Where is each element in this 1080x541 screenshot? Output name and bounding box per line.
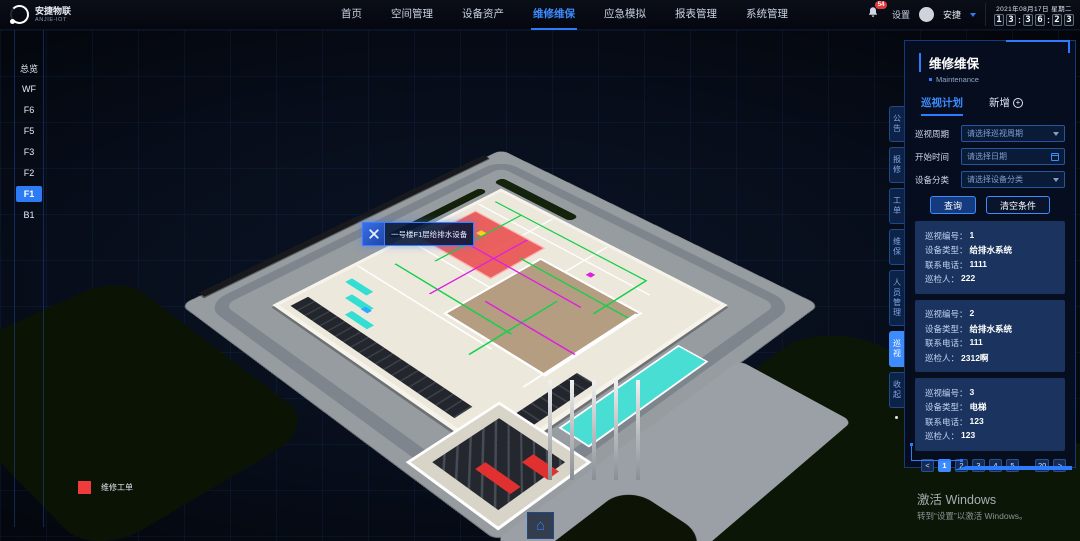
start-time-label: 开始时间 <box>915 151 961 163</box>
inspection-cycle-placeholder: 请选择巡视周期 <box>967 128 1053 139</box>
card-field-label: 巡检人： <box>925 273 959 285</box>
side-tab-collapse[interactable]: 收起 <box>889 372 904 408</box>
clear-filters-button[interactable]: 清空条件 <box>986 196 1050 214</box>
logo-icon <box>10 5 29 24</box>
side-tab-repair[interactable]: 报修 <box>889 147 904 183</box>
time-digit: 2 <box>1052 14 1062 26</box>
side-tab-inspection[interactable]: 巡视 <box>889 331 904 367</box>
filter-form: 巡视周期 请选择巡视周期 开始时间 请选择日期 设备分类 请选择设备分类 查询 … <box>915 125 1065 214</box>
floor-item-f2[interactable]: F2 <box>16 165 42 181</box>
panel-tabs: 巡视计划 新增 <box>921 95 1075 116</box>
time-digit: 3 <box>1023 14 1033 26</box>
side-strip-dot <box>895 416 898 419</box>
time-digits: 1 3 : 3 6 : 2 3 <box>994 14 1074 26</box>
time-digit: 6 <box>1035 14 1045 26</box>
time-digit: 3 <box>1064 14 1074 26</box>
home-icon <box>536 518 545 533</box>
tab-add-new-label: 新增 <box>989 95 1010 110</box>
chevron-down-icon <box>1053 132 1059 136</box>
inspection-card[interactable]: 巡视编号：1 设备类型：给排水系统 联系电话：1111 巡检人：222 <box>915 221 1065 294</box>
side-tab-maintenance[interactable]: 维保 <box>889 229 904 265</box>
page-next-button[interactable]: > <box>1053 459 1066 472</box>
card-field-label: 巡检人： <box>925 430 959 442</box>
card-field-label: 巡视编号： <box>925 308 968 320</box>
ground-plane <box>182 150 818 541</box>
watermark-line1: 激活 Windows <box>917 489 1028 508</box>
nav-item-system[interactable]: 系统管理 <box>744 0 790 30</box>
nav-item-space[interactable]: 空间管理 <box>389 0 435 30</box>
legend-color-swatch <box>78 481 91 494</box>
floor-item-f5[interactable]: F5 <box>16 123 42 139</box>
query-button[interactable]: 查询 <box>930 196 976 214</box>
start-date-placeholder: 请选择日期 <box>967 151 1051 162</box>
calendar-icon <box>1051 153 1059 161</box>
side-tab-personnel[interactable]: 人员管理 <box>889 270 904 326</box>
maintenance-panel: 维修维保 Maintenance 巡视计划 新增 巡视周期 请选择巡视周期 开始… <box>904 40 1076 468</box>
time-separator: : <box>1047 15 1050 25</box>
card-field-value: 111 <box>970 337 983 349</box>
nav-item-reports[interactable]: 报表管理 <box>673 0 719 30</box>
card-field-label: 联系电话： <box>925 259 968 271</box>
card-field-value: 123 <box>970 416 984 428</box>
tab-inspection-plan[interactable]: 巡视计划 <box>921 95 963 116</box>
plus-circle-icon <box>1013 98 1023 108</box>
date-text: 2021年08月17日 星期二 <box>994 3 1074 13</box>
side-tab-announcements[interactable]: 公告 <box>889 106 904 142</box>
device-category-label: 设备分类 <box>915 174 961 186</box>
model-device-tag[interactable]: 一号楼F1层给排水设备 <box>362 222 474 246</box>
tab-add-new[interactable]: 新增 <box>989 95 1023 116</box>
card-field-value: 1 <box>970 230 975 242</box>
time-digit: 1 <box>994 14 1004 26</box>
side-tab-strip: 公告 报修 工单 维保 人员管理 巡视 收起 <box>889 106 904 419</box>
inspection-card[interactable]: 巡视编号：3 设备类型：电梯 联系电话：123 巡检人：123 <box>915 378 1065 451</box>
floor-item-b1[interactable]: B1 <box>16 207 42 223</box>
user-name[interactable]: 安捷 <box>943 8 961 21</box>
inspection-card[interactable]: 巡视编号：2 设备类型：给排水系统 联系电话：111 巡检人：2312啊 <box>915 300 1065 373</box>
legend: 维修工单 <box>78 481 133 494</box>
card-field-value: 3 <box>970 387 975 399</box>
device-category-select[interactable]: 请选择设备分类 <box>961 171 1065 188</box>
nav-item-emergency[interactable]: 应急模拟 <box>602 0 648 30</box>
card-field-label: 联系电话： <box>925 337 968 349</box>
card-field-value: 222 <box>961 273 975 285</box>
card-field-label: 设备类型： <box>925 244 968 256</box>
card-field-label: 巡视编号： <box>925 387 968 399</box>
settings-button[interactable]: 设置 <box>892 8 910 21</box>
inspection-cycle-select[interactable]: 请选择巡视周期 <box>961 125 1065 142</box>
nav-item-maintenance[interactable]: 维修维保 <box>531 0 577 30</box>
floor-item-f6[interactable]: F6 <box>16 102 42 118</box>
nav-item-home[interactable]: 首页 <box>339 0 364 30</box>
topbar: 安捷物联 ANJIE-IOT 首页 空间管理 设备资产 维修维保 应急模拟 报表… <box>0 0 1080 30</box>
windows-activation-watermark: 激活 Windows 转到“设置”以激活 Windows。 <box>917 489 1028 522</box>
reset-view-button[interactable] <box>527 512 554 539</box>
time-digit: 3 <box>1006 14 1016 26</box>
weekday-value: 星期二 <box>1051 6 1072 13</box>
page-4[interactable]: 4 <box>989 459 1002 472</box>
main-nav: 首页 空间管理 设备资产 维修维保 应急模拟 报表管理 系统管理 <box>339 0 790 30</box>
side-tab-workorder[interactable]: 工单 <box>889 188 904 224</box>
card-field-value: 1111 <box>970 259 988 271</box>
time-separator: : <box>1018 15 1021 25</box>
floor-selector: 总览 WF F6 F5 F3 F2 F1 B1 <box>14 60 44 223</box>
panel-title: 维修维保 <box>919 53 1063 72</box>
watermark-line2: 转到“设置”以激活 Windows。 <box>917 510 1028 522</box>
panel-corner-decor <box>911 445 961 461</box>
clock: 2021年08月17日 星期二 1 3 : 3 6 : 2 3 <box>985 3 1074 26</box>
page-20[interactable]: 20 <box>1035 459 1049 472</box>
logo-title: 安捷物联 <box>35 6 71 16</box>
floor-item-f3[interactable]: F3 <box>16 144 42 160</box>
card-field-label: 巡视编号： <box>925 230 968 242</box>
card-field-value: 给排水系统 <box>970 244 1013 256</box>
legend-label: 维修工单 <box>101 482 133 493</box>
chevron-down-icon[interactable] <box>970 13 976 17</box>
card-field-label: 巡检人： <box>925 352 959 364</box>
card-field-label: 设备类型： <box>925 401 968 413</box>
floor-item-overview[interactable]: 总览 <box>16 60 42 76</box>
panel-header: 维修维保 Maintenance <box>905 41 1075 84</box>
start-date-picker[interactable]: 请选择日期 <box>961 148 1065 165</box>
page-ellipsis: … <box>1023 461 1031 470</box>
panel-subtitle: Maintenance <box>929 75 1063 84</box>
page-3[interactable]: 3 <box>972 459 985 472</box>
inspection-card-list: 巡视编号：1 设备类型：给排水系统 联系电话：1111 巡检人：222 巡视编号… <box>915 221 1065 451</box>
card-field-value: 123 <box>961 430 975 442</box>
chevron-down-icon <box>1053 178 1059 182</box>
user-avatar[interactable] <box>919 7 934 22</box>
page-5[interactable]: 5 <box>1006 459 1019 472</box>
entrance-pillars <box>548 380 660 480</box>
app-logo: 安捷物联 ANJIE-IOT <box>10 5 71 24</box>
nav-item-assets[interactable]: 设备资产 <box>460 0 506 30</box>
card-field-label: 联系电话： <box>925 416 968 428</box>
inspection-cycle-label: 巡视周期 <box>915 128 961 140</box>
floor-item-f1[interactable]: F1 <box>16 186 42 202</box>
logo-subtitle: ANJIE-IOT <box>35 17 71 23</box>
device-tools-icon <box>363 223 385 245</box>
card-field-value: 电梯 <box>970 401 987 413</box>
date-value: 2021年08月17日 <box>996 6 1049 13</box>
card-field-value: 2312啊 <box>961 352 988 364</box>
topbar-right: 54 设置 安捷 2021年08月17日 星期二 1 3 : 3 6 : 2 3 <box>867 3 1074 26</box>
card-field-value: 2 <box>970 308 975 320</box>
device-tag-label: 一号楼F1层给排水设备 <box>385 229 473 240</box>
device-category-placeholder: 请选择设备分类 <box>967 174 1053 185</box>
card-field-value: 给排水系统 <box>970 323 1013 335</box>
notification-bell-icon[interactable]: 54 <box>867 6 879 24</box>
card-field-label: 设备类型： <box>925 323 968 335</box>
notification-badge: 54 <box>875 1 887 9</box>
floor-item-wf[interactable]: WF <box>16 81 42 97</box>
